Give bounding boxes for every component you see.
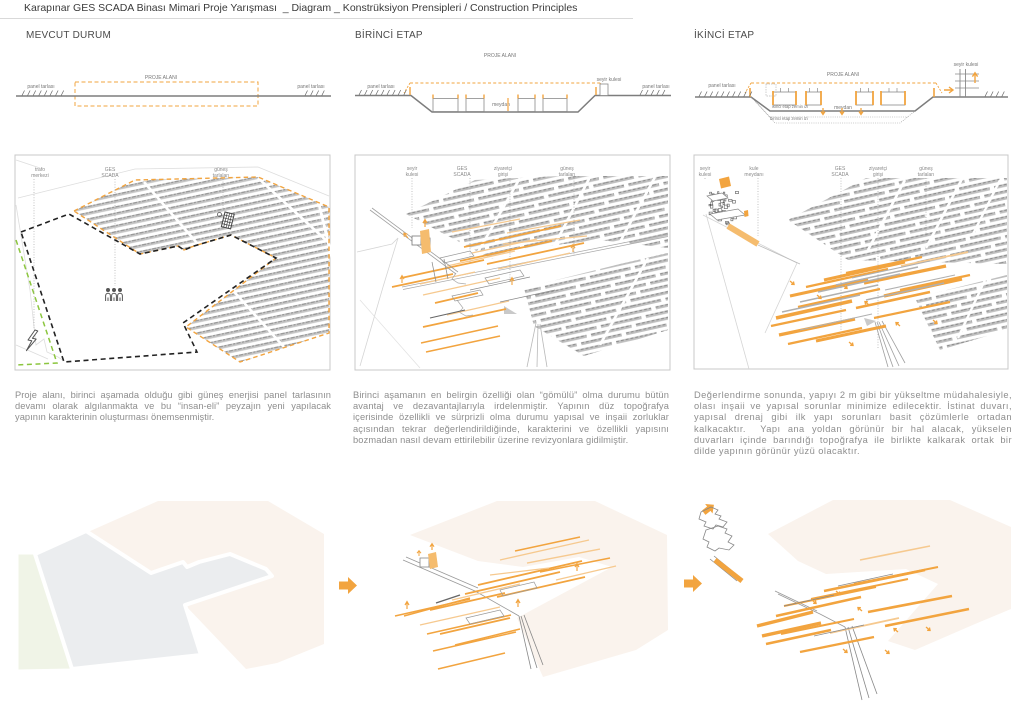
svg-text:tarlaları: tarlaları — [213, 173, 230, 179]
svg-text:seyir kulesi: seyir kulesi — [597, 77, 622, 83]
svg-text:SCADA: SCADA — [831, 172, 849, 178]
svg-text:PROJE ALANI: PROJE ALANI — [827, 72, 859, 78]
svg-text:girişi: girişi — [498, 172, 508, 178]
svg-text:panel tarlası: panel tarlası — [708, 83, 735, 89]
svg-text:panel tarlası: panel tarlası — [297, 84, 324, 90]
svg-text:birinci etap zemin izi: birinci etap zemin izi — [770, 116, 808, 121]
svg-text:girişi: girişi — [873, 172, 883, 178]
svg-text:panel tarlası: panel tarlası — [642, 84, 669, 90]
svg-text:SCADA: SCADA — [453, 172, 471, 178]
svg-text:PROJE ALANI: PROJE ALANI — [145, 75, 177, 81]
svg-text:meydanı: meydanı — [744, 172, 763, 178]
svg-text:SCADA: SCADA — [101, 173, 119, 179]
svg-text:seyir kulesi: seyir kulesi — [954, 62, 979, 68]
svg-text:merkezi: merkezi — [31, 173, 49, 179]
svg-text:tarlaları: tarlaları — [918, 172, 935, 178]
svg-text:tarlaları: tarlaları — [559, 172, 576, 178]
svg-text:kulesi: kulesi — [406, 172, 419, 178]
svg-text:panel tarlası: panel tarlası — [27, 84, 54, 90]
svg-text:meydan: meydan — [834, 105, 852, 111]
svg-text:PROJE ALANI: PROJE ALANI — [484, 53, 516, 59]
svg-text:kulesi: kulesi — [699, 172, 712, 178]
svg-text:panel tarlası: panel tarlası — [367, 84, 394, 90]
